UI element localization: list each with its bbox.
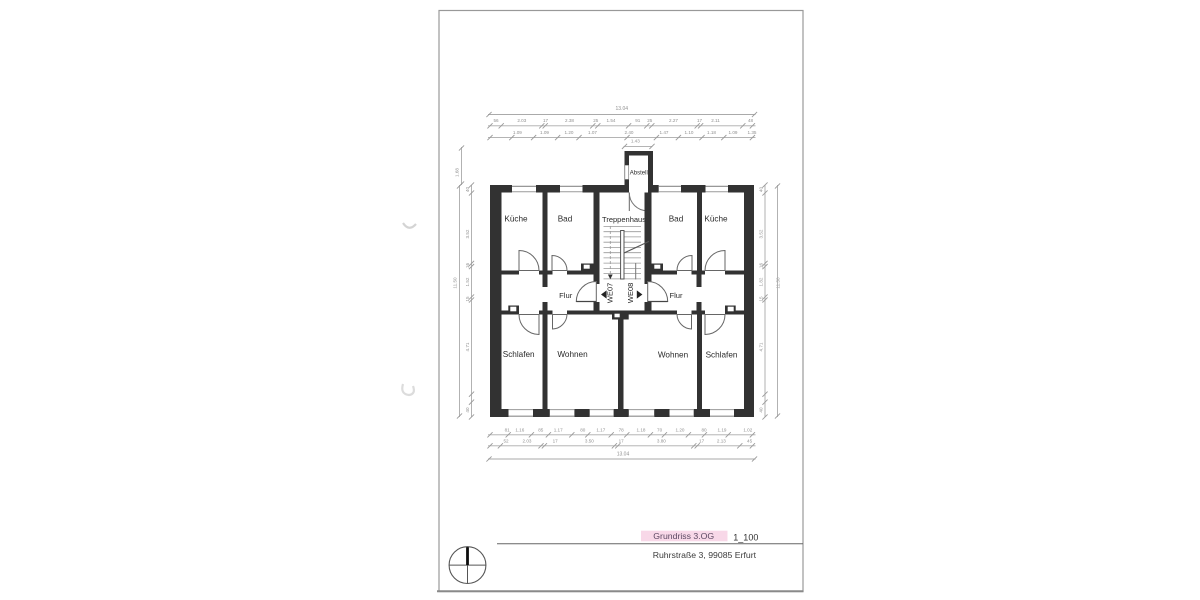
svg-text:Flur: Flur xyxy=(559,291,573,300)
svg-text:3.50: 3.50 xyxy=(585,438,594,443)
svg-text:2.27: 2.27 xyxy=(669,118,678,123)
svg-text:16: 16 xyxy=(465,263,470,269)
svg-text:1.35: 1.35 xyxy=(748,130,757,135)
svg-text:1.20: 1.20 xyxy=(676,427,685,432)
svg-text:1.17: 1.17 xyxy=(596,427,605,432)
svg-text:Abstell: Abstell xyxy=(630,171,648,177)
svg-text:80: 80 xyxy=(580,427,586,432)
svg-text:Wohnen: Wohnen xyxy=(557,350,588,359)
svg-text:17: 17 xyxy=(553,438,559,443)
svg-text:2.38: 2.38 xyxy=(565,118,574,123)
svg-text:11.50: 11.50 xyxy=(453,277,458,289)
svg-text:2.03: 2.03 xyxy=(523,438,532,443)
svg-text:2.11: 2.11 xyxy=(711,118,720,123)
svg-text:40: 40 xyxy=(758,187,763,193)
svg-text:1.54: 1.54 xyxy=(607,118,616,123)
svg-text:Küche: Küche xyxy=(704,215,728,224)
svg-text:85: 85 xyxy=(538,427,544,432)
svg-text:1.09: 1.09 xyxy=(513,130,522,135)
svg-text:1.10: 1.10 xyxy=(685,130,694,135)
svg-text:48: 48 xyxy=(748,118,754,123)
svg-text:80: 80 xyxy=(701,427,707,432)
svg-text:1.09: 1.09 xyxy=(540,130,549,135)
svg-text:Treppenhaus: Treppenhaus xyxy=(602,215,646,224)
svg-text:40: 40 xyxy=(465,407,470,413)
svg-text:Schlafen: Schlafen xyxy=(503,350,535,359)
svg-text:15: 15 xyxy=(465,296,470,302)
svg-text:Flur: Flur xyxy=(669,291,683,300)
svg-text:17: 17 xyxy=(699,438,705,443)
svg-text:1.19: 1.19 xyxy=(718,427,727,432)
svg-text:Grundriss 3.OG: Grundriss 3.OG xyxy=(653,531,714,541)
svg-text:1.68: 1.68 xyxy=(454,168,459,177)
svg-text:1.20: 1.20 xyxy=(565,130,574,135)
svg-text:Bad: Bad xyxy=(669,215,684,224)
svg-text:2.03: 2.03 xyxy=(517,118,526,123)
svg-text:52: 52 xyxy=(503,438,509,443)
svg-text:25: 25 xyxy=(593,118,599,123)
svg-text:Ruhrstraße 3, 99085 Erfurt: Ruhrstraße 3, 99085 Erfurt xyxy=(653,550,757,560)
svg-text:17: 17 xyxy=(697,118,703,123)
svg-text:3.52: 3.52 xyxy=(465,229,470,238)
svg-text:1.43: 1.43 xyxy=(631,139,640,144)
svg-text:1.82: 1.82 xyxy=(758,277,763,286)
svg-text:91: 91 xyxy=(635,118,641,123)
svg-text:WE07: WE07 xyxy=(606,283,615,303)
svg-text:45: 45 xyxy=(747,438,753,443)
svg-text:70: 70 xyxy=(657,427,663,432)
svg-text:11.50: 11.50 xyxy=(776,277,781,289)
svg-text:1.07: 1.07 xyxy=(588,130,597,135)
svg-text:40: 40 xyxy=(758,407,763,413)
svg-text:1.16: 1.16 xyxy=(515,427,524,432)
svg-text:1.18: 1.18 xyxy=(707,130,716,135)
svg-text:1.02: 1.02 xyxy=(743,427,752,432)
svg-text:15: 15 xyxy=(758,296,763,302)
svg-text:78: 78 xyxy=(619,427,625,432)
svg-text:56: 56 xyxy=(493,118,499,123)
svg-text:1.47: 1.47 xyxy=(660,130,669,135)
svg-text:25: 25 xyxy=(647,118,653,123)
svg-text:Bad: Bad xyxy=(558,215,573,224)
svg-text:3.80: 3.80 xyxy=(657,438,666,443)
svg-text:4.71: 4.71 xyxy=(465,342,470,351)
svg-text:1.09: 1.09 xyxy=(729,130,738,135)
svg-text:Küche: Küche xyxy=(504,215,528,224)
svg-text:1.18: 1.18 xyxy=(637,427,646,432)
svg-text:1.52: 1.52 xyxy=(465,277,470,286)
svg-text:2.40: 2.40 xyxy=(625,130,634,135)
svg-text:17: 17 xyxy=(619,438,625,443)
svg-text:17: 17 xyxy=(543,118,549,123)
svg-text:16: 16 xyxy=(758,263,763,269)
svg-text:13.04: 13.04 xyxy=(617,452,630,458)
svg-text:2.13: 2.13 xyxy=(717,438,726,443)
svg-text:Wohnen: Wohnen xyxy=(658,351,689,360)
svg-text:1_100: 1_100 xyxy=(733,533,758,543)
svg-text:1.17: 1.17 xyxy=(554,427,563,432)
svg-text:40: 40 xyxy=(465,187,470,193)
svg-text:13.04: 13.04 xyxy=(616,106,629,112)
svg-text:WE08: WE08 xyxy=(626,283,635,303)
svg-text:81: 81 xyxy=(505,427,511,432)
svg-text:4.71: 4.71 xyxy=(758,342,763,351)
svg-text:3.52: 3.52 xyxy=(758,229,763,238)
svg-text:Schlafen: Schlafen xyxy=(706,351,738,360)
